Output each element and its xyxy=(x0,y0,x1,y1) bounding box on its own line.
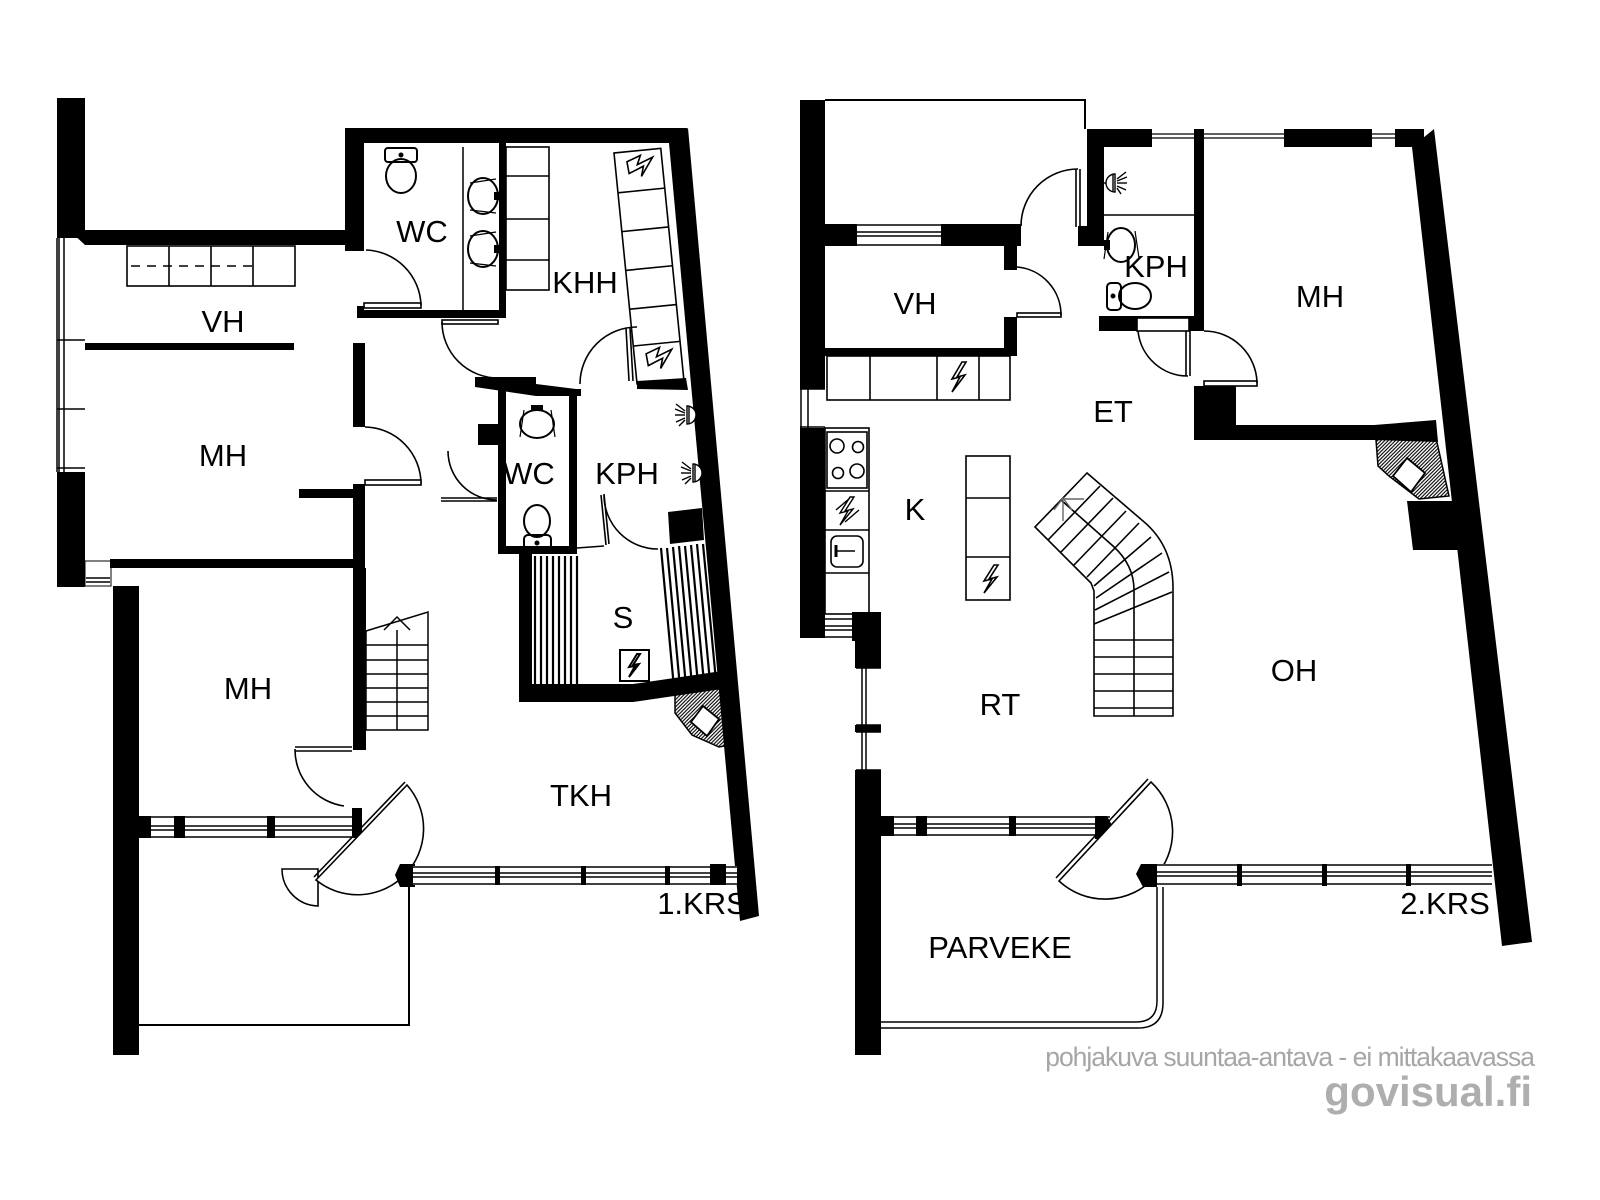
svg-text:MH: MH xyxy=(1296,279,1344,314)
svg-text:MH: MH xyxy=(199,438,247,473)
svg-text:WC: WC xyxy=(396,214,448,249)
svg-text:1.KRS: 1.KRS xyxy=(657,886,747,921)
svg-text:TKH: TKH xyxy=(550,778,612,813)
svg-text:ET: ET xyxy=(1093,394,1133,429)
svg-text:PARVEKE: PARVEKE xyxy=(928,930,1072,965)
svg-text:KPH: KPH xyxy=(1124,249,1188,284)
svg-text:MH: MH xyxy=(224,671,272,706)
svg-text:VH: VH xyxy=(201,304,244,339)
svg-text:VH: VH xyxy=(893,286,936,321)
svg-text:S: S xyxy=(613,600,634,635)
svg-text:OH: OH xyxy=(1271,653,1318,688)
svg-text:WC: WC xyxy=(503,456,555,491)
svg-text:2.KRS: 2.KRS xyxy=(1400,886,1490,921)
svg-text:KHH: KHH xyxy=(552,265,617,300)
svg-text:RT: RT xyxy=(980,687,1021,722)
svg-text:K: K xyxy=(905,492,926,527)
svg-text:govisual.fi: govisual.fi xyxy=(1324,1068,1532,1115)
svg-text:KPH: KPH xyxy=(595,456,659,491)
